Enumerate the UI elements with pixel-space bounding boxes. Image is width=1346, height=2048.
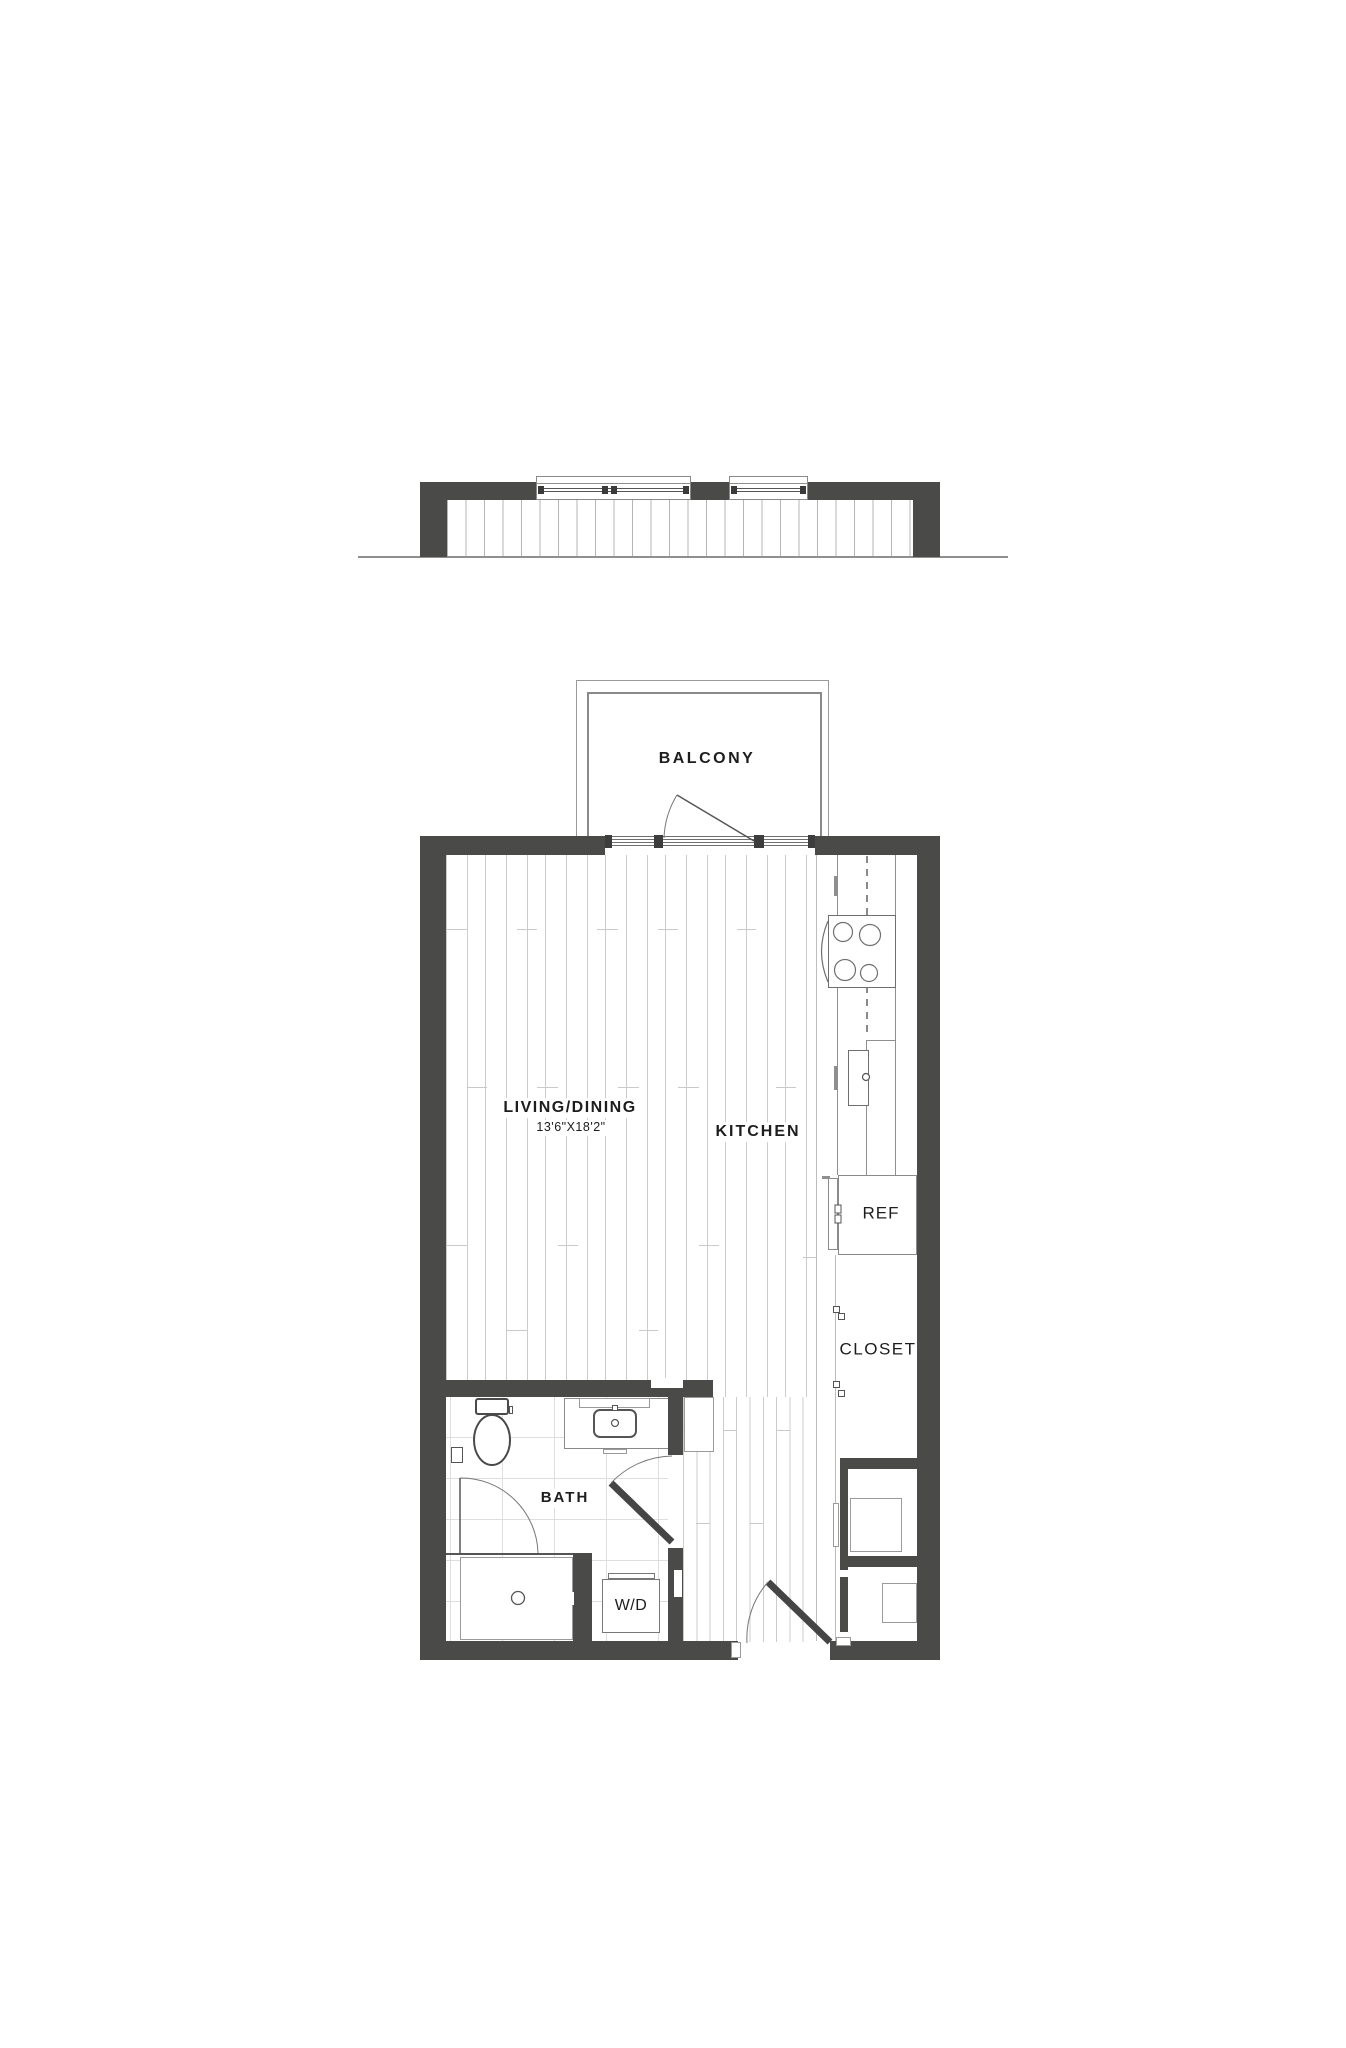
plank-seam: [776, 1430, 790, 1431]
plank-seam: [446, 1245, 467, 1246]
sliding-track: [605, 839, 815, 840]
living-dining-label: LIVING/DINING: [499, 1098, 640, 1118]
elevation-header-band: [691, 482, 729, 500]
shower-door-handle-notch: [567, 1592, 574, 1605]
shower-top-line: [446, 1553, 573, 1555]
counter-inner-line: [895, 855, 896, 1175]
sliding-track: [605, 845, 815, 846]
storage-b-door-notch: [840, 1570, 852, 1577]
plank-seam: [737, 929, 756, 930]
elevation-left-pier: [420, 482, 447, 557]
counter-front-line: [837, 855, 838, 1175]
glazing-clip: [611, 486, 617, 494]
floor-plan-page: BALCONY: [0, 0, 1346, 2048]
storage-divider-wall: [840, 1556, 917, 1567]
toilet-tank: [475, 1398, 509, 1415]
closet-door-hinge: [833, 1306, 840, 1313]
closet-label: CLOSET: [835, 1340, 920, 1361]
plank-seam: [696, 1523, 710, 1524]
plank-seam: [699, 1245, 719, 1246]
ref-label: REF: [859, 1204, 904, 1225]
storage-a-door-leaf: [833, 1503, 839, 1547]
kitchen-label: KITCHEN: [711, 1122, 804, 1142]
storage-b-inner-box: [882, 1583, 917, 1623]
cabinet-handle: [834, 1066, 837, 1090]
living-dining-dimensions: 13'6"X18'2": [532, 1120, 609, 1136]
plank-seam: [507, 1330, 527, 1331]
hall-niche: [684, 1397, 714, 1452]
plank-seam: [723, 1430, 736, 1431]
closet-bottom-wall: [840, 1458, 917, 1469]
bath-wall-notch: [651, 1378, 683, 1388]
plank-seam: [558, 1245, 578, 1246]
stove: [828, 915, 896, 988]
vanity-sink: [593, 1409, 637, 1438]
counter-step-line: [866, 1040, 896, 1041]
plank-seam: [639, 1330, 658, 1331]
shower-pan: [460, 1557, 573, 1640]
refrigerator-door-panel: [828, 1178, 838, 1250]
plank-seam: [537, 1087, 558, 1088]
sliding-track: [605, 836, 815, 837]
storage-a-inner-box: [850, 1498, 902, 1552]
elevation-header-band: [808, 482, 913, 500]
plank-seam: [618, 1087, 639, 1088]
vanity-front-tab: [603, 1449, 627, 1454]
window-glazing-line: [731, 491, 806, 492]
washer-dryer-label: W/D: [611, 1596, 652, 1616]
entry-jamb: [731, 1642, 741, 1658]
plank-seam: [803, 1257, 816, 1258]
plank-seam: [467, 1087, 487, 1088]
refrigerator-handle: [822, 1176, 830, 1179]
bath-right-wall-upper: [668, 1397, 683, 1455]
glazing-clip: [602, 486, 608, 494]
plank-seam: [678, 1087, 699, 1088]
elevation-siding: [447, 500, 913, 556]
storage-a-left-wall: [840, 1469, 848, 1556]
cabinet-handle: [834, 876, 837, 896]
vanity-faucet-stem: [612, 1405, 618, 1411]
elevation-ground-line: [358, 556, 1008, 558]
plank-seam: [776, 1087, 796, 1088]
balcony-label: BALCONY: [655, 749, 760, 769]
entry-jamb: [836, 1637, 851, 1646]
track-end-cap: [605, 835, 612, 848]
track-end-cap: [808, 835, 815, 848]
track-stop: [754, 835, 764, 848]
window-glazing-line: [731, 488, 806, 489]
glazing-clip: [800, 486, 806, 494]
left-wall: [420, 836, 446, 1660]
bottom-wall-left: [420, 1641, 738, 1660]
plank-seam: [658, 929, 678, 930]
plank-seam: [597, 929, 618, 930]
top-wall-left: [420, 836, 605, 855]
track-stop: [654, 835, 663, 848]
plank-seam: [750, 1523, 763, 1524]
elevation-header-band: [447, 482, 536, 500]
closet-door-hinge: [838, 1313, 845, 1320]
window-frame-line: [730, 483, 807, 484]
plank-seam: [446, 929, 467, 930]
plank-seam: [517, 929, 537, 930]
closet-door-hinge: [833, 1381, 840, 1388]
window-frame-line: [537, 483, 690, 484]
pocket-notch: [674, 1570, 682, 1597]
glazing-clip: [538, 486, 544, 494]
right-wall: [917, 836, 940, 1660]
storage-b-left-wall: [840, 1567, 848, 1641]
toilet-paper-holder: [451, 1447, 463, 1463]
glazing-clip: [683, 486, 689, 494]
kitchen-sink: [848, 1050, 869, 1106]
glazing-clip: [731, 486, 737, 494]
bath-label: BATH: [537, 1489, 594, 1508]
floor-edge-line: [816, 855, 817, 1641]
shower-wall-strip: [573, 1553, 592, 1641]
elevation-right-pier: [913, 482, 940, 557]
sliding-track: [605, 842, 815, 843]
closet-door-hinge: [838, 1390, 845, 1397]
toilet-flush-tab: [509, 1406, 513, 1414]
